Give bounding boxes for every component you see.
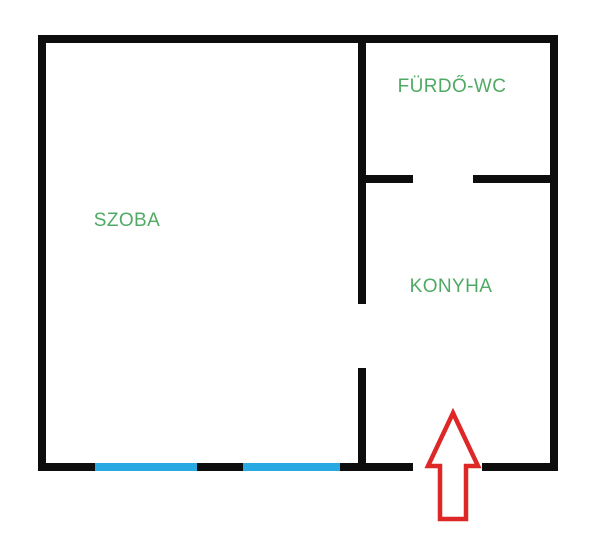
window-segment-2: [243, 463, 340, 471]
wall-divider-horizontal-left: [358, 175, 413, 183]
room-label-konyha: KONYHA: [410, 276, 493, 298]
wall-right: [550, 35, 558, 471]
wall-divider-vertical-upper: [358, 35, 366, 304]
entrance-arrow-layer: [0, 0, 600, 535]
wall-divider-horizontal-right: [473, 175, 558, 183]
wall-bottom-right: [482, 463, 558, 471]
room-label-furdo-wc: FÜRDŐ-WC: [398, 76, 507, 98]
room-label-szoba: SZOBA: [94, 210, 160, 232]
floorplan: SZOBA FÜRDŐ-WC KONYHA: [0, 0, 600, 535]
wall-divider-vertical-lower: [358, 368, 366, 471]
window-segment-1: [95, 463, 197, 471]
wall-top: [38, 35, 558, 43]
entrance-arrow-icon: [428, 413, 478, 519]
wall-left: [38, 35, 46, 471]
